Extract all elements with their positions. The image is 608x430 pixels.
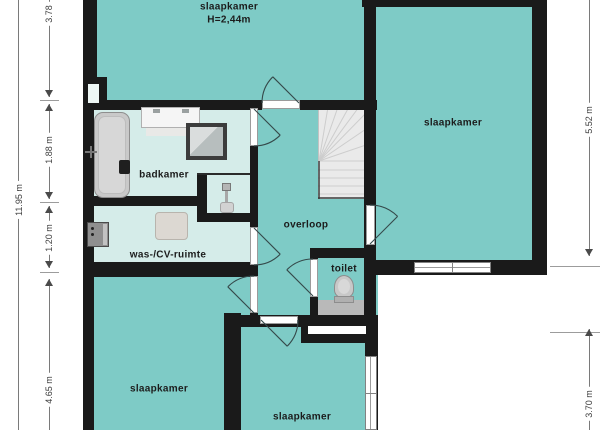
door-utility [250, 227, 258, 265]
nook [88, 84, 99, 103]
room-label-bedroom-bottom-left: slaapkamer [130, 384, 188, 395]
door-bathroom [250, 108, 258, 146]
dimension-left-seg1: 3.78 [43, 2, 55, 26]
bathtub-drain [119, 160, 130, 174]
dimension-left-seg3: 1.20 m [43, 221, 55, 255]
dimension-left-total: 11.95 m [13, 181, 25, 219]
faucet-icon [153, 109, 160, 113]
shower [186, 123, 227, 160]
wall [364, 0, 376, 315]
wall [532, 0, 547, 275]
hand-basin [219, 183, 235, 214]
window-bedroom-bottom-center-east [365, 356, 377, 430]
dimension-line-left-seg4 [49, 279, 50, 430]
wall [362, 0, 547, 7]
door-bedroom-right [366, 205, 375, 245]
dimension-right-seg2: 3.70 m [583, 387, 595, 421]
room-label-utility: was-/CV-ruimte [130, 250, 206, 261]
room-label-toilet: toilet [331, 264, 357, 275]
door-bedroom-bottom-center [260, 316, 298, 324]
window-bedroom-right-south [414, 262, 491, 273]
room-label-bedroom-bottom-center: slaapkamer [273, 412, 331, 423]
faucet-icon [182, 109, 189, 113]
window-toilet-south [308, 326, 366, 334]
dimension-left-seg4: 4.65 m [43, 373, 55, 407]
wall-thin [197, 173, 250, 175]
wall [310, 248, 376, 258]
bathtub [94, 112, 130, 198]
room-label-bathroom: badkamer [139, 170, 189, 181]
door-bedroom-top [262, 100, 300, 109]
wall [224, 313, 241, 430]
dimension-left-seg2: 1.88 m [43, 133, 55, 167]
door-toilet [310, 259, 318, 297]
washing-machine [87, 222, 109, 247]
door-bedroom-bottom-left [250, 276, 258, 313]
wall [83, 0, 97, 78]
cv-boiler [155, 212, 188, 240]
wall [83, 262, 258, 277]
staircase [318, 107, 366, 199]
floorplan: slaapkamer H=2,44m slaapkamer badkamer o… [0, 0, 608, 430]
toilet-bowl [334, 275, 354, 303]
room-label-landing: overloop [284, 220, 329, 231]
dimension-right-seg1: 5.52 m [583, 103, 595, 137]
room-height-bedroom-top: H=2,44m [207, 15, 251, 26]
wall [197, 213, 250, 222]
room-label-bedroom-right: slaapkamer [424, 118, 482, 129]
bathtub-faucet-icon [85, 146, 97, 158]
room-label-bedroom-top: slaapkamer [200, 2, 258, 13]
